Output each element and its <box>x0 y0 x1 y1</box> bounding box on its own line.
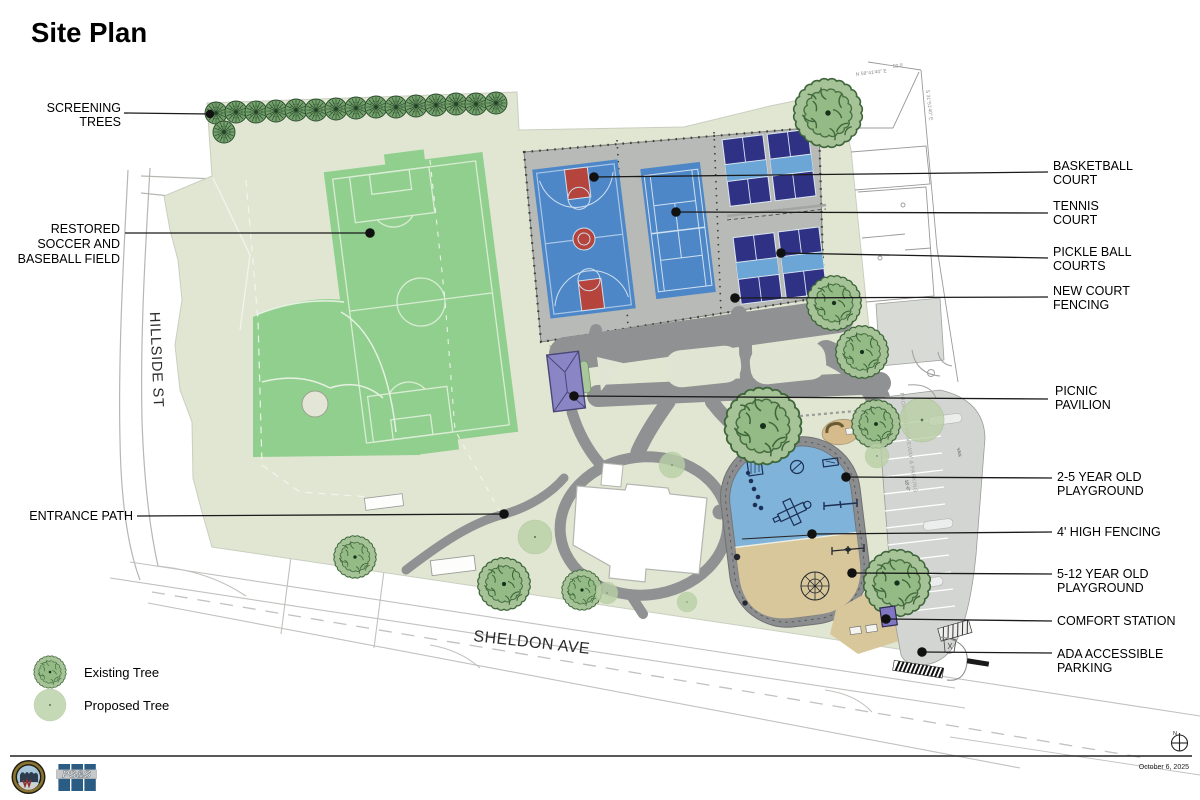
svg-text:RESTORED: RESTORED <box>51 222 120 236</box>
svg-text:COURT: COURT <box>1053 173 1098 187</box>
svg-text:4' HIGH FENCING: 4' HIGH FENCING <box>1057 525 1161 539</box>
svg-text:PARKING: PARKING <box>1057 661 1112 675</box>
svg-text:N: N <box>1173 731 1177 737</box>
svg-text:NEW COURT: NEW COURT <box>1053 284 1130 298</box>
svg-text:October 6, 2025: October 6, 2025 <box>1139 764 1189 771</box>
svg-text:COMFORT STATION: COMFORT STATION <box>1057 614 1176 628</box>
svg-text:2-5 YEAR OLD: 2-5 YEAR OLD <box>1057 470 1142 484</box>
svg-text:FENCING: FENCING <box>1053 298 1109 312</box>
svg-text:BASKETBALL: BASKETBALL <box>1053 159 1133 173</box>
svg-text:TREES: TREES <box>79 115 121 129</box>
svg-text:PICNIC: PICNIC <box>1055 384 1097 398</box>
svg-text:PS&S: PS&S <box>62 769 91 781</box>
svg-text:TENNIS: TENNIS <box>1053 199 1099 213</box>
svg-text:SCREENING: SCREENING <box>47 101 121 115</box>
svg-text:PLAYGROUND: PLAYGROUND <box>1057 484 1144 498</box>
svg-text:PLAYGROUND: PLAYGROUND <box>1057 581 1144 595</box>
svg-text:BASEBALL FIELD: BASEBALL FIELD <box>18 252 120 266</box>
svg-text:COURT: COURT <box>1053 213 1098 227</box>
svg-text:ADA ACCESSIBLE: ADA ACCESSIBLE <box>1057 647 1163 661</box>
svg-text:5-12 YEAR OLD: 5-12 YEAR OLD <box>1057 567 1148 581</box>
svg-text:PICKLE BALL: PICKLE BALL <box>1053 245 1132 259</box>
svg-text:PAVILION: PAVILION <box>1055 398 1111 412</box>
svg-text:Existing Tree: Existing Tree <box>84 665 159 680</box>
svg-text:Site Plan: Site Plan <box>31 17 147 48</box>
svg-text:ENTRANCE PATH: ENTRANCE PATH <box>29 509 133 523</box>
svg-text:SOCCER AND: SOCCER AND <box>37 237 120 251</box>
svg-text:COURTS: COURTS <box>1053 259 1106 273</box>
svg-text:Proposed Tree: Proposed Tree <box>84 698 169 713</box>
